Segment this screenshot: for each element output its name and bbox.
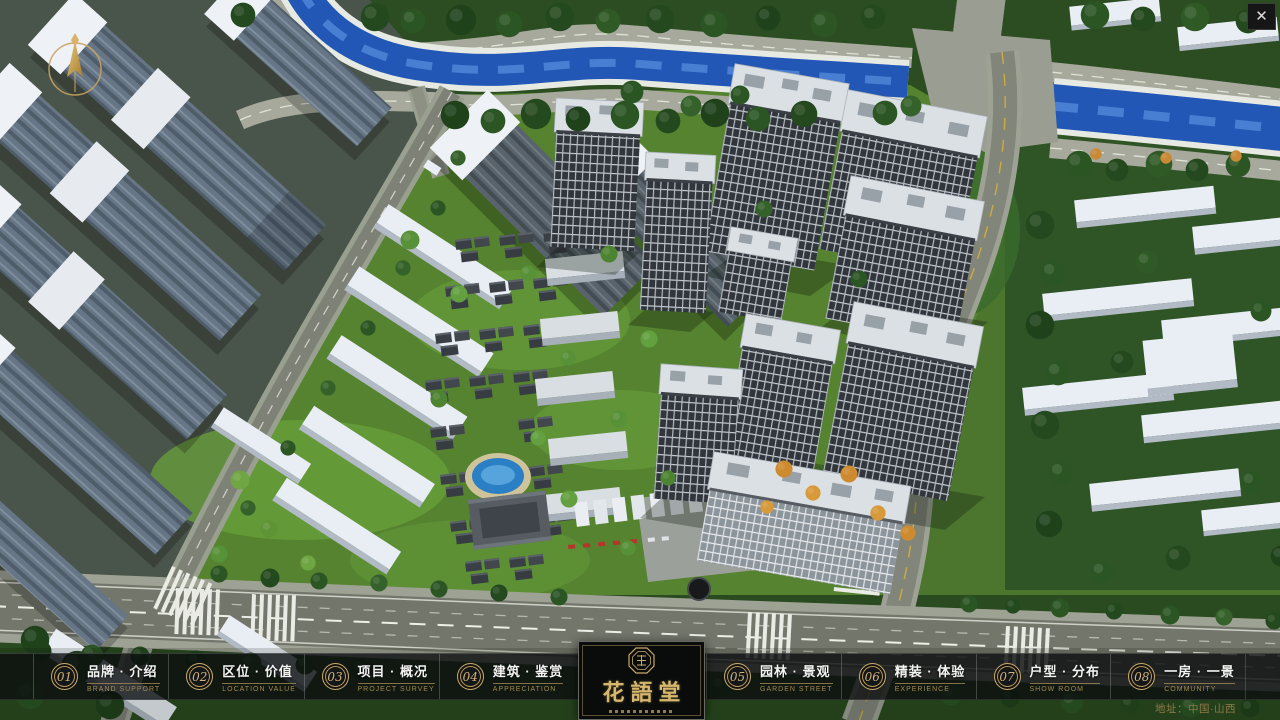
nav-item-brand-intro[interactable]: 01 品牌 · 介绍BRAND SUPPORT: [33, 654, 168, 699]
nav-item-floorplan-distribution[interactable]: 07 户型 · 分布SHOW ROOM: [976, 654, 1111, 699]
navbar-left-group: 01 品牌 · 介绍BRAND SUPPORT 02 区位 · 价值LOCATI…: [33, 654, 574, 699]
nav-item-subtitle: EXPERIENCE: [895, 683, 966, 693]
nav-number-badge: 04: [457, 663, 484, 690]
nav-item-location-value[interactable]: 02 区位 · 价值LOCATION VALUE: [168, 654, 303, 699]
nav-number-badge: 08: [1128, 663, 1155, 690]
nav-item-subtitle: LOCATION VALUE: [222, 683, 296, 693]
compass-icon: [44, 32, 106, 98]
brand-logo-subtitle: [609, 710, 675, 713]
nav-item-title: 精装 · 体验: [895, 661, 966, 680]
nav-number-badge: 03: [322, 663, 349, 690]
nav-item-title: 园林 · 景观: [760, 661, 833, 680]
nav-item-garden-landscape[interactable]: 05 园林 · 景观GARDEN STREET: [706, 654, 841, 699]
app-window: ✕ 01 品牌 · 介绍BRAND SUPPORT 02 区位 · 价值LOCA…: [0, 0, 1280, 720]
brand-logo-title: 花語堂: [596, 675, 686, 707]
nav-item-subtitle: BRAND SUPPORT: [87, 683, 160, 693]
brand-logo-panel[interactable]: 花語堂: [578, 641, 705, 720]
nav-number-badge: 06: [859, 663, 886, 690]
nav-item-title: 户型 · 分布: [1030, 661, 1101, 680]
nav-item-title: 一房 · 一景: [1164, 661, 1235, 680]
nav-item-title: 区位 · 价值: [222, 661, 296, 680]
nav-item-subtitle: SHOW ROOM: [1030, 683, 1101, 693]
nav-item-subtitle: APPRECIATION: [493, 683, 564, 693]
nav-item-subtitle: PROJECT SURVEY: [358, 683, 435, 693]
nav-item-subtitle: COMMUNITY: [1164, 683, 1235, 693]
nav-item-project-overview[interactable]: 03 项目 · 概况PROJECT SURVEY: [304, 654, 439, 699]
nav-item-subtitle: GARDEN STREET: [760, 683, 833, 693]
nav-item-title: 建筑 · 鉴赏: [493, 661, 564, 680]
nav-item-architecture-appreciation[interactable]: 04 建筑 · 鉴赏APPRECIATION: [439, 654, 574, 699]
navbar-right-group: 05 园林 · 景观GARDEN STREET 06 精装 · 体验EXPERI…: [706, 654, 1246, 699]
nav-item-title: 项目 · 概况: [358, 661, 435, 680]
close-button[interactable]: ✕: [1247, 3, 1276, 30]
address-text: 地址：中国·山西: [1155, 701, 1236, 716]
nav-number-badge: 01: [51, 663, 78, 690]
nav-item-one-room-one-view[interactable]: 08 一房 · 一景COMMUNITY: [1110, 654, 1246, 699]
masterplan-render: [0, 0, 1280, 720]
nav-number-badge: 02: [186, 663, 213, 690]
nav-item-interior-experience[interactable]: 06 精装 · 体验EXPERIENCE: [841, 654, 976, 699]
nav-item-title: 品牌 · 介绍: [87, 661, 160, 680]
nav-number-badge: 07: [994, 663, 1021, 690]
brand-seal-icon: [628, 647, 655, 674]
nav-number-badge: 05: [724, 663, 751, 690]
